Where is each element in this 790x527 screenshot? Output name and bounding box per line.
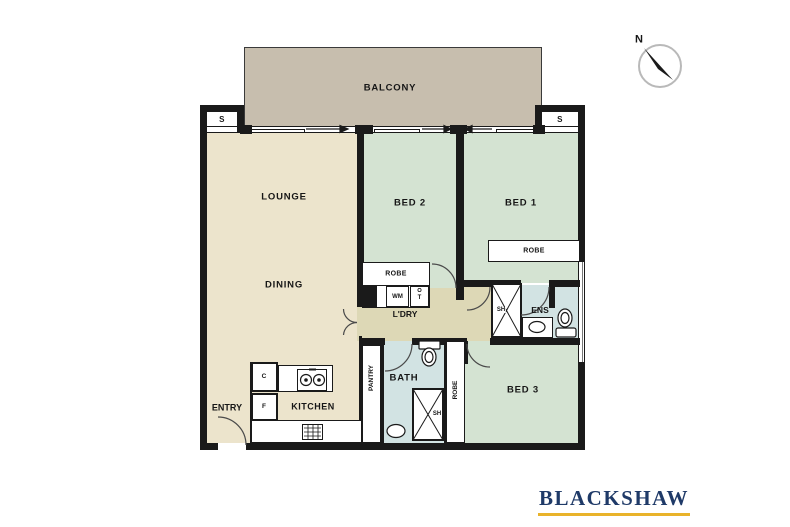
dryer-label: T (418, 295, 422, 301)
robe-bed2-label: ROBE (385, 271, 406, 278)
laundry-label: L'DRY (393, 310, 418, 319)
washing-machine-label: WM (392, 294, 403, 300)
entry-door-arc (218, 417, 246, 445)
stove-icon (301, 369, 325, 386)
agency-logo-text: BLACKSHAW (538, 486, 690, 511)
compass (639, 45, 681, 87)
dryer-dot-icon (418, 288, 421, 291)
agency-logo-underline (538, 513, 690, 516)
bed2-door-arc (432, 264, 456, 288)
slider-arrows (306, 126, 492, 133)
bed1-label: BED 1 (505, 198, 537, 208)
bath-door-arc (385, 344, 412, 371)
robe-bed3-label: ROBE (453, 381, 460, 400)
robe-bed1-label: ROBE (523, 248, 544, 255)
compass-needle (644, 48, 673, 80)
agency-logo: BLACKSHAW (538, 486, 690, 516)
shower-bath-label: SH (432, 411, 442, 417)
pantry-label: PANTRY (368, 365, 375, 391)
toilet-ensuite-icon (556, 309, 576, 337)
bed2-label: BED 2 (394, 198, 426, 208)
kitchen-label: KITCHEN (291, 403, 335, 412)
storage-right-label: S (557, 116, 563, 124)
dining-label: DINING (265, 280, 303, 290)
bed3-door-arc (467, 344, 490, 367)
slider-arrowhead-lounge (340, 126, 348, 133)
bed1-door-arc (467, 287, 490, 310)
cupboard-label: C (262, 374, 267, 381)
kitchen-sink-icon (304, 425, 321, 439)
basin-bath-icon (387, 425, 405, 438)
dining-door-arc-top (344, 309, 358, 323)
slider-arrowhead-bed2 (444, 126, 451, 133)
shower-ensuite-label: SH (496, 307, 506, 313)
dining-door-arc-bottom (344, 322, 358, 335)
toilet-bath-icon (419, 341, 440, 366)
basin-ensuite-icon (529, 322, 545, 333)
plan-linework (0, 0, 790, 527)
lounge-label: LOUNGE (261, 192, 306, 202)
compass-north-label: N (635, 35, 643, 46)
balcony-label: BALCONY (364, 83, 417, 93)
ensuite-label: ENS (531, 306, 548, 315)
door-arcs (218, 264, 549, 445)
slider-arrowhead-bed1 (465, 126, 472, 133)
fridge-label: F (262, 404, 266, 411)
bath-label: BATH (390, 373, 419, 383)
entry-label: ENTRY (212, 404, 242, 413)
floor-plan-page: BALCONY S S LOUNGE DINING BED 2 BED 1 RO… (0, 0, 790, 527)
bed3-label: BED 3 (507, 385, 539, 395)
storage-left-label: S (219, 116, 225, 124)
